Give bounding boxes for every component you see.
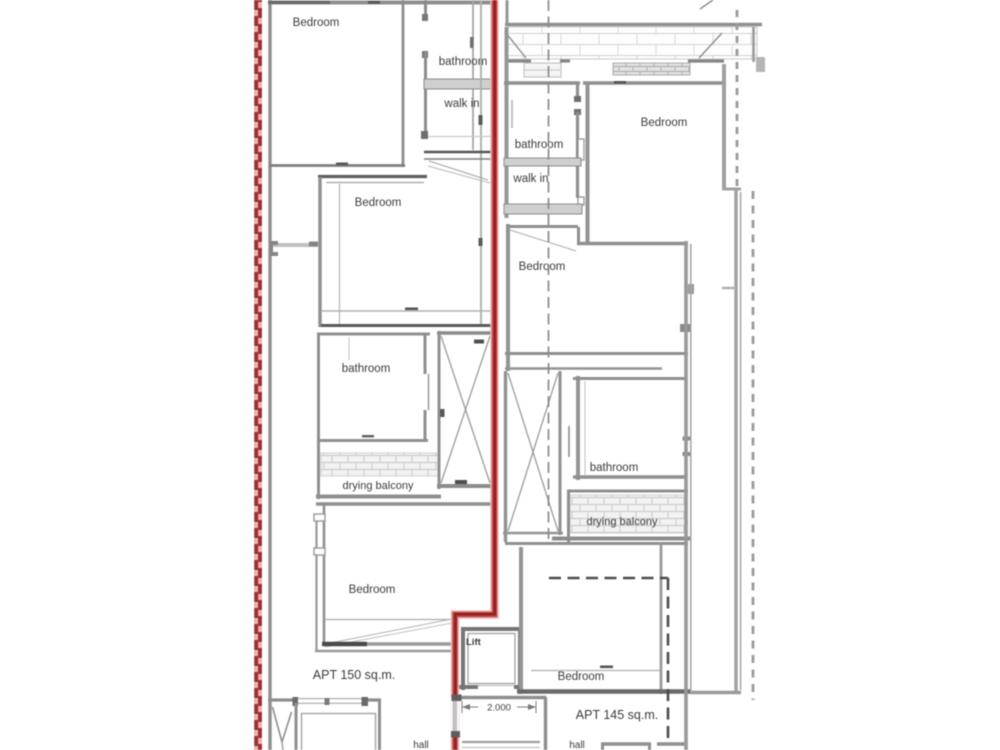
svg-text:bathroom: bathroom (342, 363, 391, 375)
svg-text:drying balcony: drying balcony (343, 480, 414, 492)
svg-text:Bedroom: Bedroom (558, 671, 605, 683)
svg-text:Bedroom: Bedroom (293, 17, 340, 29)
svg-text:Bedroom: Bedroom (519, 261, 566, 273)
svg-text:Lift: Lift (466, 637, 482, 648)
svg-text:Bedroom: Bedroom (641, 117, 688, 129)
svg-text:bathroom: bathroom (515, 139, 564, 151)
svg-text:Bedroom: Bedroom (355, 197, 402, 209)
svg-text:walk in: walk in (443, 98, 479, 110)
svg-text:drying balcony: drying balcony (587, 516, 658, 528)
svg-text:bathroom: bathroom (590, 462, 639, 474)
svg-text:Bedroom: Bedroom (349, 584, 396, 596)
svg-text:APT 150 sq.m.: APT 150 sq.m. (313, 668, 395, 682)
svg-text:walk in: walk in (512, 173, 548, 185)
svg-text:hall: hall (569, 740, 585, 750)
svg-text:2.000: 2.000 (487, 703, 511, 714)
svg-text:hall: hall (413, 740, 429, 750)
svg-text:APT 145 sq.m.: APT 145 sq.m. (576, 708, 658, 722)
